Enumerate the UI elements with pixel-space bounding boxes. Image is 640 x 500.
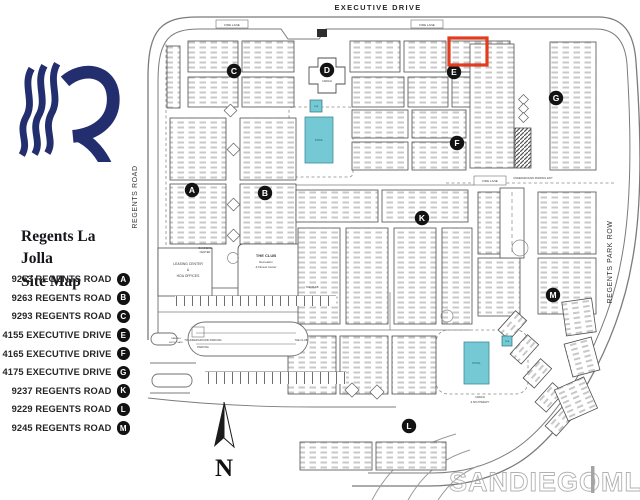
legend-letter-badge: F [117,347,131,361]
title-line-1: Regents La Jolla [21,226,131,271]
marker-letter: D [324,65,330,75]
marker-letter: B [262,188,268,198]
legend-item: 9253 REGENTS ROADA [4,270,130,289]
legend-letter-badge: K [117,384,131,398]
north-compass: N [214,402,234,482]
map-label: PARKING [197,345,208,349]
logo-r-mark [65,72,115,162]
legend-address: 9229 REGENTS ROAD [12,404,112,414]
street-label-regents-road: REGENTS ROAD [132,165,139,228]
map-label: TO UNDERGROUND PARKING [184,338,221,342]
watermark-mls: MLS [601,467,640,497]
address-legend: 9253 REGENTS ROADA9263 REGENTS ROADB9293… [4,270,130,437]
map-label: & SPA THERAPY [471,401,490,404]
map-label: THE CLUB [306,285,319,289]
left-panel: Regents La Jolla Site Map 9253 REGENTS R… [0,0,132,500]
legend-letter-badge: A [117,273,131,287]
legend-item: 9229 REGENTS ROADL [4,400,130,419]
watermark: SANDIEGO MLS [449,466,640,497]
map-label: CABANA [475,396,485,399]
marker-letter: G [553,93,560,103]
legend-address: 4155 EXECUTIVE DRIVE [3,330,112,340]
map-marker-M: M [546,288,560,302]
map-marker-G: G [549,91,563,105]
legend-letter-badge: E [117,328,131,342]
legend-address: 9253 REGENTS ROAD [12,274,112,284]
marker-letter: M [549,290,556,300]
map-marker-E: E [447,65,461,79]
legend-item: 4165 EXECUTIVE DRIVEF [4,344,130,363]
regents-logo [12,44,120,162]
legend-item: 9293 REGENTS ROADC [4,307,130,326]
map-marker-B: B [258,186,272,200]
legend-letter-badge: M [117,421,131,435]
map-label: Recreation [259,260,273,264]
map-marker-D: D [320,63,334,77]
marker-letter: E [451,67,457,77]
legend-letter-badge: L [117,403,131,417]
map-label: THE CLUB [295,338,308,342]
legend-address: 9237 REGENTS ROAD [12,386,112,396]
marker-letter: C [231,66,237,76]
legend-item: 4175 EXECUTIVE DRIVEG [4,363,130,382]
legend-item: 9245 REGENTS ROADM [4,419,130,438]
map-marker-K: K [415,211,429,225]
map-label: CENTER [200,250,211,254]
watermark-sandiego: SANDIEGO [449,467,601,497]
legend-letter-badge: C [117,310,131,324]
map-marker-F: F [450,136,464,150]
map-label: & Fitness Center [256,265,277,269]
logo-wave-lines [22,64,57,155]
map-label: CABANA [322,80,332,83]
legend-address: 9263 REGENTS ROAD [12,293,112,303]
map-label: HOA OFFICES [177,274,201,278]
map-label: LEASING CENTER [173,262,203,266]
legend-letter-badge: B [117,291,131,305]
map-label: FIRE LANE [224,23,240,27]
marker-letter: F [454,138,459,148]
compass-n-label: N [215,455,233,482]
map-marker-C: C [227,64,241,78]
map-marker-A: A [185,183,199,197]
legend-item: 4155 EXECUTIVE DRIVEE [4,326,130,345]
pool-label: POOL [472,361,481,365]
map-marker-L: L [402,419,416,433]
map-label: FIRE LANE [482,179,498,183]
street-label-executive-drive: EXECUTIVE DRIVE [334,3,421,12]
marker-letter: L [406,421,411,431]
legend-item: 9237 REGENTS ROADK [4,382,130,401]
legend-address: 4165 EXECUTIVE DRIVE [3,349,112,359]
map-label: BUSINESS [198,246,211,250]
legend-address: 9245 REGENTS ROAD [12,423,112,433]
watermark-divider [591,466,595,493]
map-label: UNDERGROUND PARKING EXIT [513,176,553,180]
legend-item: 9263 REGENTS ROADB [4,289,130,308]
marker-letter: K [419,213,426,223]
street-label-regents-park-row: REGENTS PARK ROW [607,221,614,304]
site-map-page: POOLPOOLSPASPA FIRE LANEFIRE LANEFIRE LA… [0,0,640,500]
marker-letter: A [189,185,195,195]
map-label: THE CLUB [256,253,276,258]
pool-label: POOL [315,138,324,142]
legend-letter-badge: G [117,366,131,380]
legend-address: 4175 EXECUTIVE DRIVE [3,367,112,377]
map-label: FIRE LANE [419,23,435,27]
legend-address: 9293 REGENTS ROAD [12,311,112,321]
